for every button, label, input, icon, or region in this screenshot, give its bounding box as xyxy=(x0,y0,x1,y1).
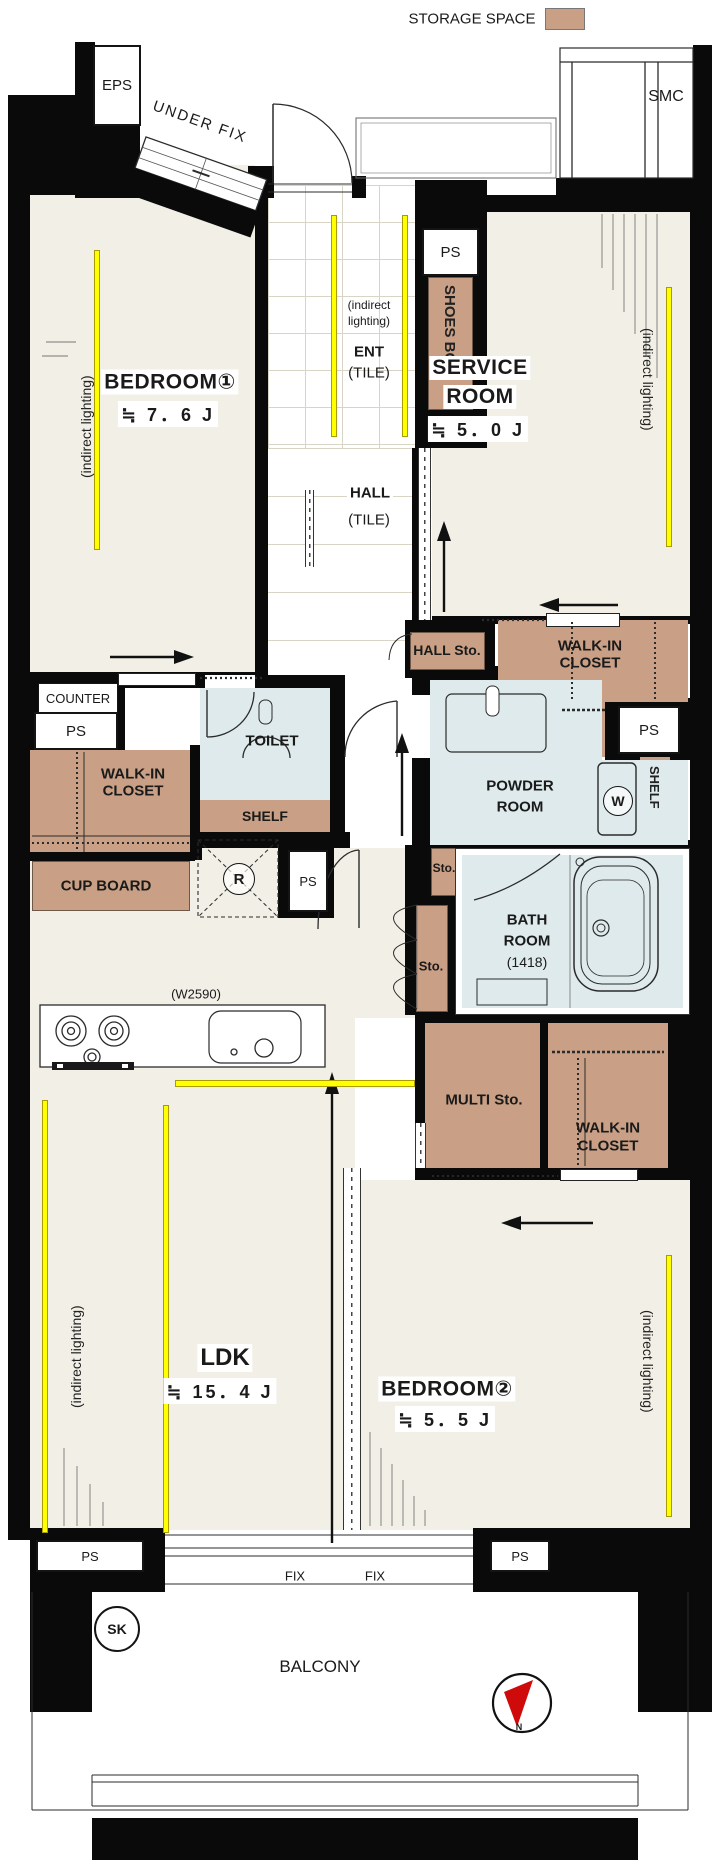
storage-2-label: Sto. xyxy=(419,959,444,974)
bedroom1-label: BEDROOM① xyxy=(101,370,238,395)
shelf-left-label: SHELF xyxy=(242,808,288,824)
powder-room-label-2: ROOM xyxy=(497,799,544,816)
bedroom1-size: ≒ 7．6 J xyxy=(118,401,218,427)
ps-shaft-entrance: PS xyxy=(422,228,479,276)
smc-label: SMC xyxy=(648,88,684,106)
ldk-size: ≒ 15．4 J xyxy=(163,1378,276,1404)
indirect-lighting-bar xyxy=(94,250,100,550)
indirect-lighting-bar xyxy=(402,215,408,437)
floor-plan: STORAGE SPACE EPS SMC PS COUNTER PS PS P… xyxy=(0,0,720,1860)
bedroom2-size: ≒ 5．5 J xyxy=(395,1406,495,1432)
ent-floor-label: (TILE) xyxy=(348,365,390,382)
ps-shaft-kitchen: PS xyxy=(288,850,328,912)
legend-label: STORAGE SPACE xyxy=(409,11,536,28)
bedroom2-label: BEDROOM② xyxy=(378,1377,515,1402)
ps-shaft-left: PS xyxy=(34,712,118,750)
fix-window-label-2: FIX xyxy=(362,1569,388,1584)
indirect-lighting-bar xyxy=(331,215,337,437)
indirect-lighting-bar xyxy=(42,1100,48,1533)
hall-storage-label: HALL Sto. xyxy=(413,642,480,658)
wic-upper-right-label-2: CLOSET xyxy=(560,655,621,672)
indirect-lighting-bar xyxy=(163,1105,169,1533)
wic-bottom-label-1: WALK-IN xyxy=(576,1120,640,1137)
indirect-lighting-bar xyxy=(175,1080,415,1087)
sk-sink-mark: SK xyxy=(94,1606,140,1652)
indirect-lighting-bar xyxy=(666,287,672,547)
counter-box: COUNTER xyxy=(38,683,118,713)
ps-shaft-bottom-right: PS xyxy=(490,1540,550,1572)
cup-board-label: CUP BOARD xyxy=(61,878,152,895)
bath-room-label-2: ROOM xyxy=(504,933,551,950)
service-room-label-1: SERVICE xyxy=(429,356,530,380)
legend-swatch xyxy=(545,8,585,30)
toilet-label: TOILET xyxy=(245,733,298,750)
wic-left-label-1: WALK-IN xyxy=(101,766,165,783)
plan-linework xyxy=(0,0,720,1860)
eps-shaft: EPS xyxy=(93,45,141,126)
ps-shaft-bottom-left: PS xyxy=(36,1540,144,1572)
multi-storage-label: MULTI Sto. xyxy=(445,1092,522,1109)
wic-left-label-2: CLOSET xyxy=(103,783,164,800)
ent-indirect-line2: lighting) xyxy=(348,314,390,328)
fix-window-label-1: FIX xyxy=(282,1569,308,1584)
powder-room-label-1: POWDER xyxy=(486,778,554,795)
indirect-lighting-bar xyxy=(666,1255,672,1517)
ldk-label: LDK xyxy=(197,1344,252,1372)
ps-shaft-powder: PS xyxy=(618,706,680,754)
bath-room-label-1: BATH xyxy=(507,912,548,929)
balcony-label: BALCONY xyxy=(279,1657,360,1677)
kitchen-width-label: (W2590) xyxy=(171,987,221,1002)
compass-north-label: N xyxy=(516,1722,523,1732)
wic-bottom-label-2: CLOSET xyxy=(578,1138,639,1155)
wic-upper-right-label-1: WALK-IN xyxy=(558,638,622,655)
bath-room-size: (1418) xyxy=(507,954,547,970)
ent-label: ENT xyxy=(354,344,384,361)
refrigerator-mark: R xyxy=(223,863,255,895)
hall-floor-label: (TILE) xyxy=(345,512,393,529)
service-room-label-2: ROOM xyxy=(443,385,516,409)
ent-indirect-line1: (indirect xyxy=(348,298,391,312)
storage-1-label: Sto. xyxy=(433,861,456,875)
service-room-size: ≒ 5．0 J xyxy=(428,416,528,442)
hall-label: HALL xyxy=(347,485,393,502)
washing-machine-mark: W xyxy=(603,786,633,816)
